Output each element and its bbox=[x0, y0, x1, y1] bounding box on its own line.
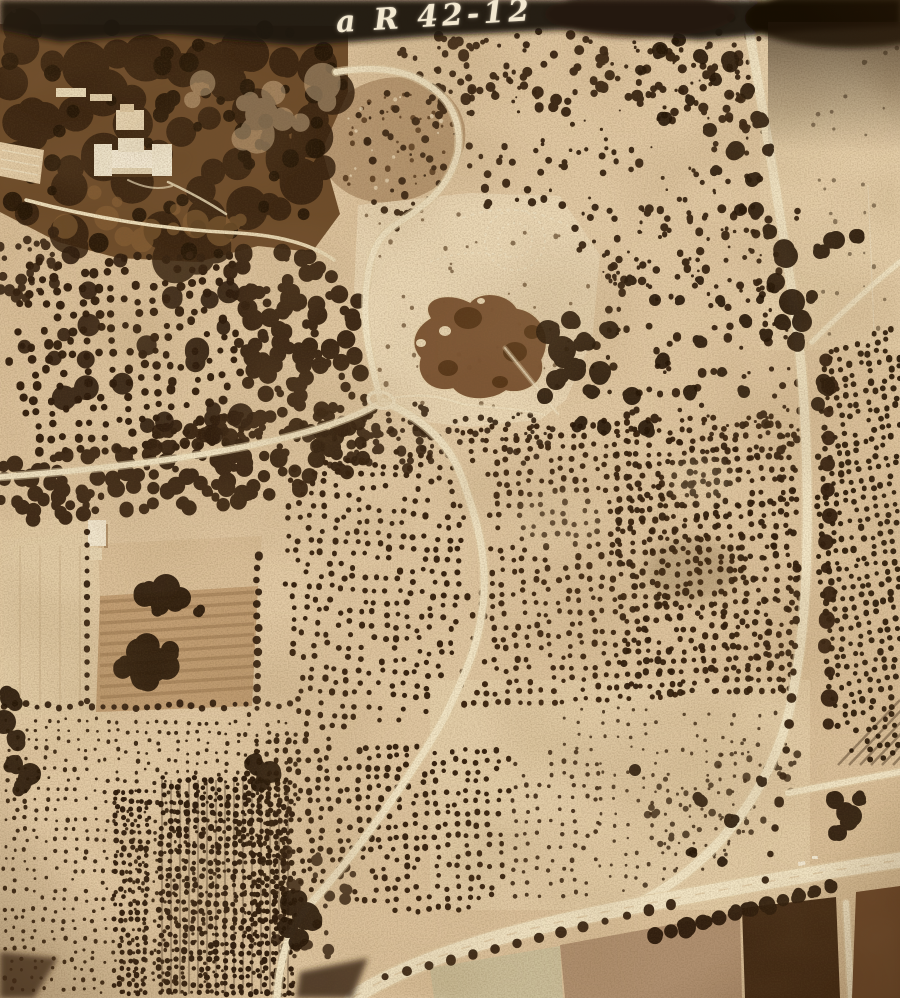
vignette bbox=[0, 0, 900, 998]
aerial-photograph: a R 42-12 bbox=[0, 0, 900, 998]
photo-canvas bbox=[0, 0, 900, 998]
